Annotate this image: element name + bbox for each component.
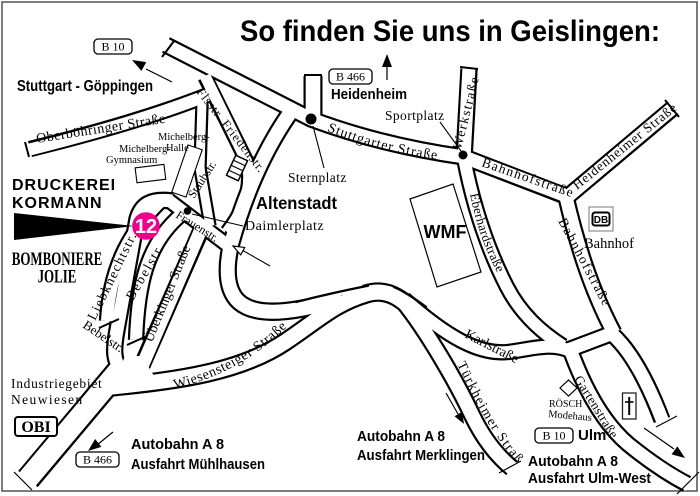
svg-text:Daimlerplatz: Daimlerplatz: [245, 219, 324, 234]
svg-text:OBI: OBI: [21, 419, 50, 436]
svg-text:Bahnhof: Bahnhof: [584, 236, 634, 252]
svg-text:Ausfahrt Ulm-West: Ausfahrt Ulm-West: [528, 470, 651, 487]
svg-text:Michelberg-: Michelberg-: [158, 132, 210, 143]
svg-text:Ausfahrt Mühlhausen: Ausfahrt Mühlhausen: [131, 456, 265, 473]
svg-text:B 10: B 10: [542, 429, 565, 443]
svg-text:Industriegebiet: Industriegebiet: [11, 376, 102, 391]
svg-text:Autobahn A 8: Autobahn A 8: [357, 428, 445, 445]
svg-text:Gymnasium: Gymnasium: [106, 155, 157, 166]
svg-text:Sportplatz: Sportplatz: [385, 108, 445, 123]
svg-text:B 466: B 466: [336, 70, 365, 84]
svg-text:Neuwiesen: Neuwiesen: [11, 392, 84, 407]
svg-text:Michelberg-: Michelberg-: [119, 144, 171, 155]
svg-text:Altenstadt: Altenstadt: [256, 193, 337, 213]
svg-text:Autobahn A 8: Autobahn A 8: [131, 436, 224, 453]
svg-text:JOLIE: JOLIE: [38, 267, 77, 287]
svg-text:Autobahn A 8: Autobahn A 8: [528, 453, 618, 470]
svg-text:B 10: B 10: [101, 40, 124, 54]
svg-text:Heidenheim: Heidenheim: [331, 87, 407, 103]
svg-text:DRUCKEREI: DRUCKEREI: [12, 177, 116, 194]
svg-text:WMF: WMF: [424, 222, 467, 242]
svg-text:KORMANN: KORMANN: [12, 195, 103, 212]
svg-text:B 466: B 466: [83, 453, 112, 467]
svg-text:Ausfahrt Merklingen: Ausfahrt Merklingen: [357, 447, 485, 464]
svg-text:DB: DB: [594, 215, 608, 226]
svg-text:So finden Sie uns in Geislinge: So finden Sie uns in Geislingen:: [240, 15, 660, 48]
svg-text:RÖSCH: RÖSCH: [549, 398, 582, 410]
svg-text:Stuttgart - Göppingen: Stuttgart - Göppingen: [17, 78, 153, 95]
svg-text:12: 12: [135, 216, 157, 238]
svg-text:Sternplatz: Sternplatz: [288, 170, 347, 185]
